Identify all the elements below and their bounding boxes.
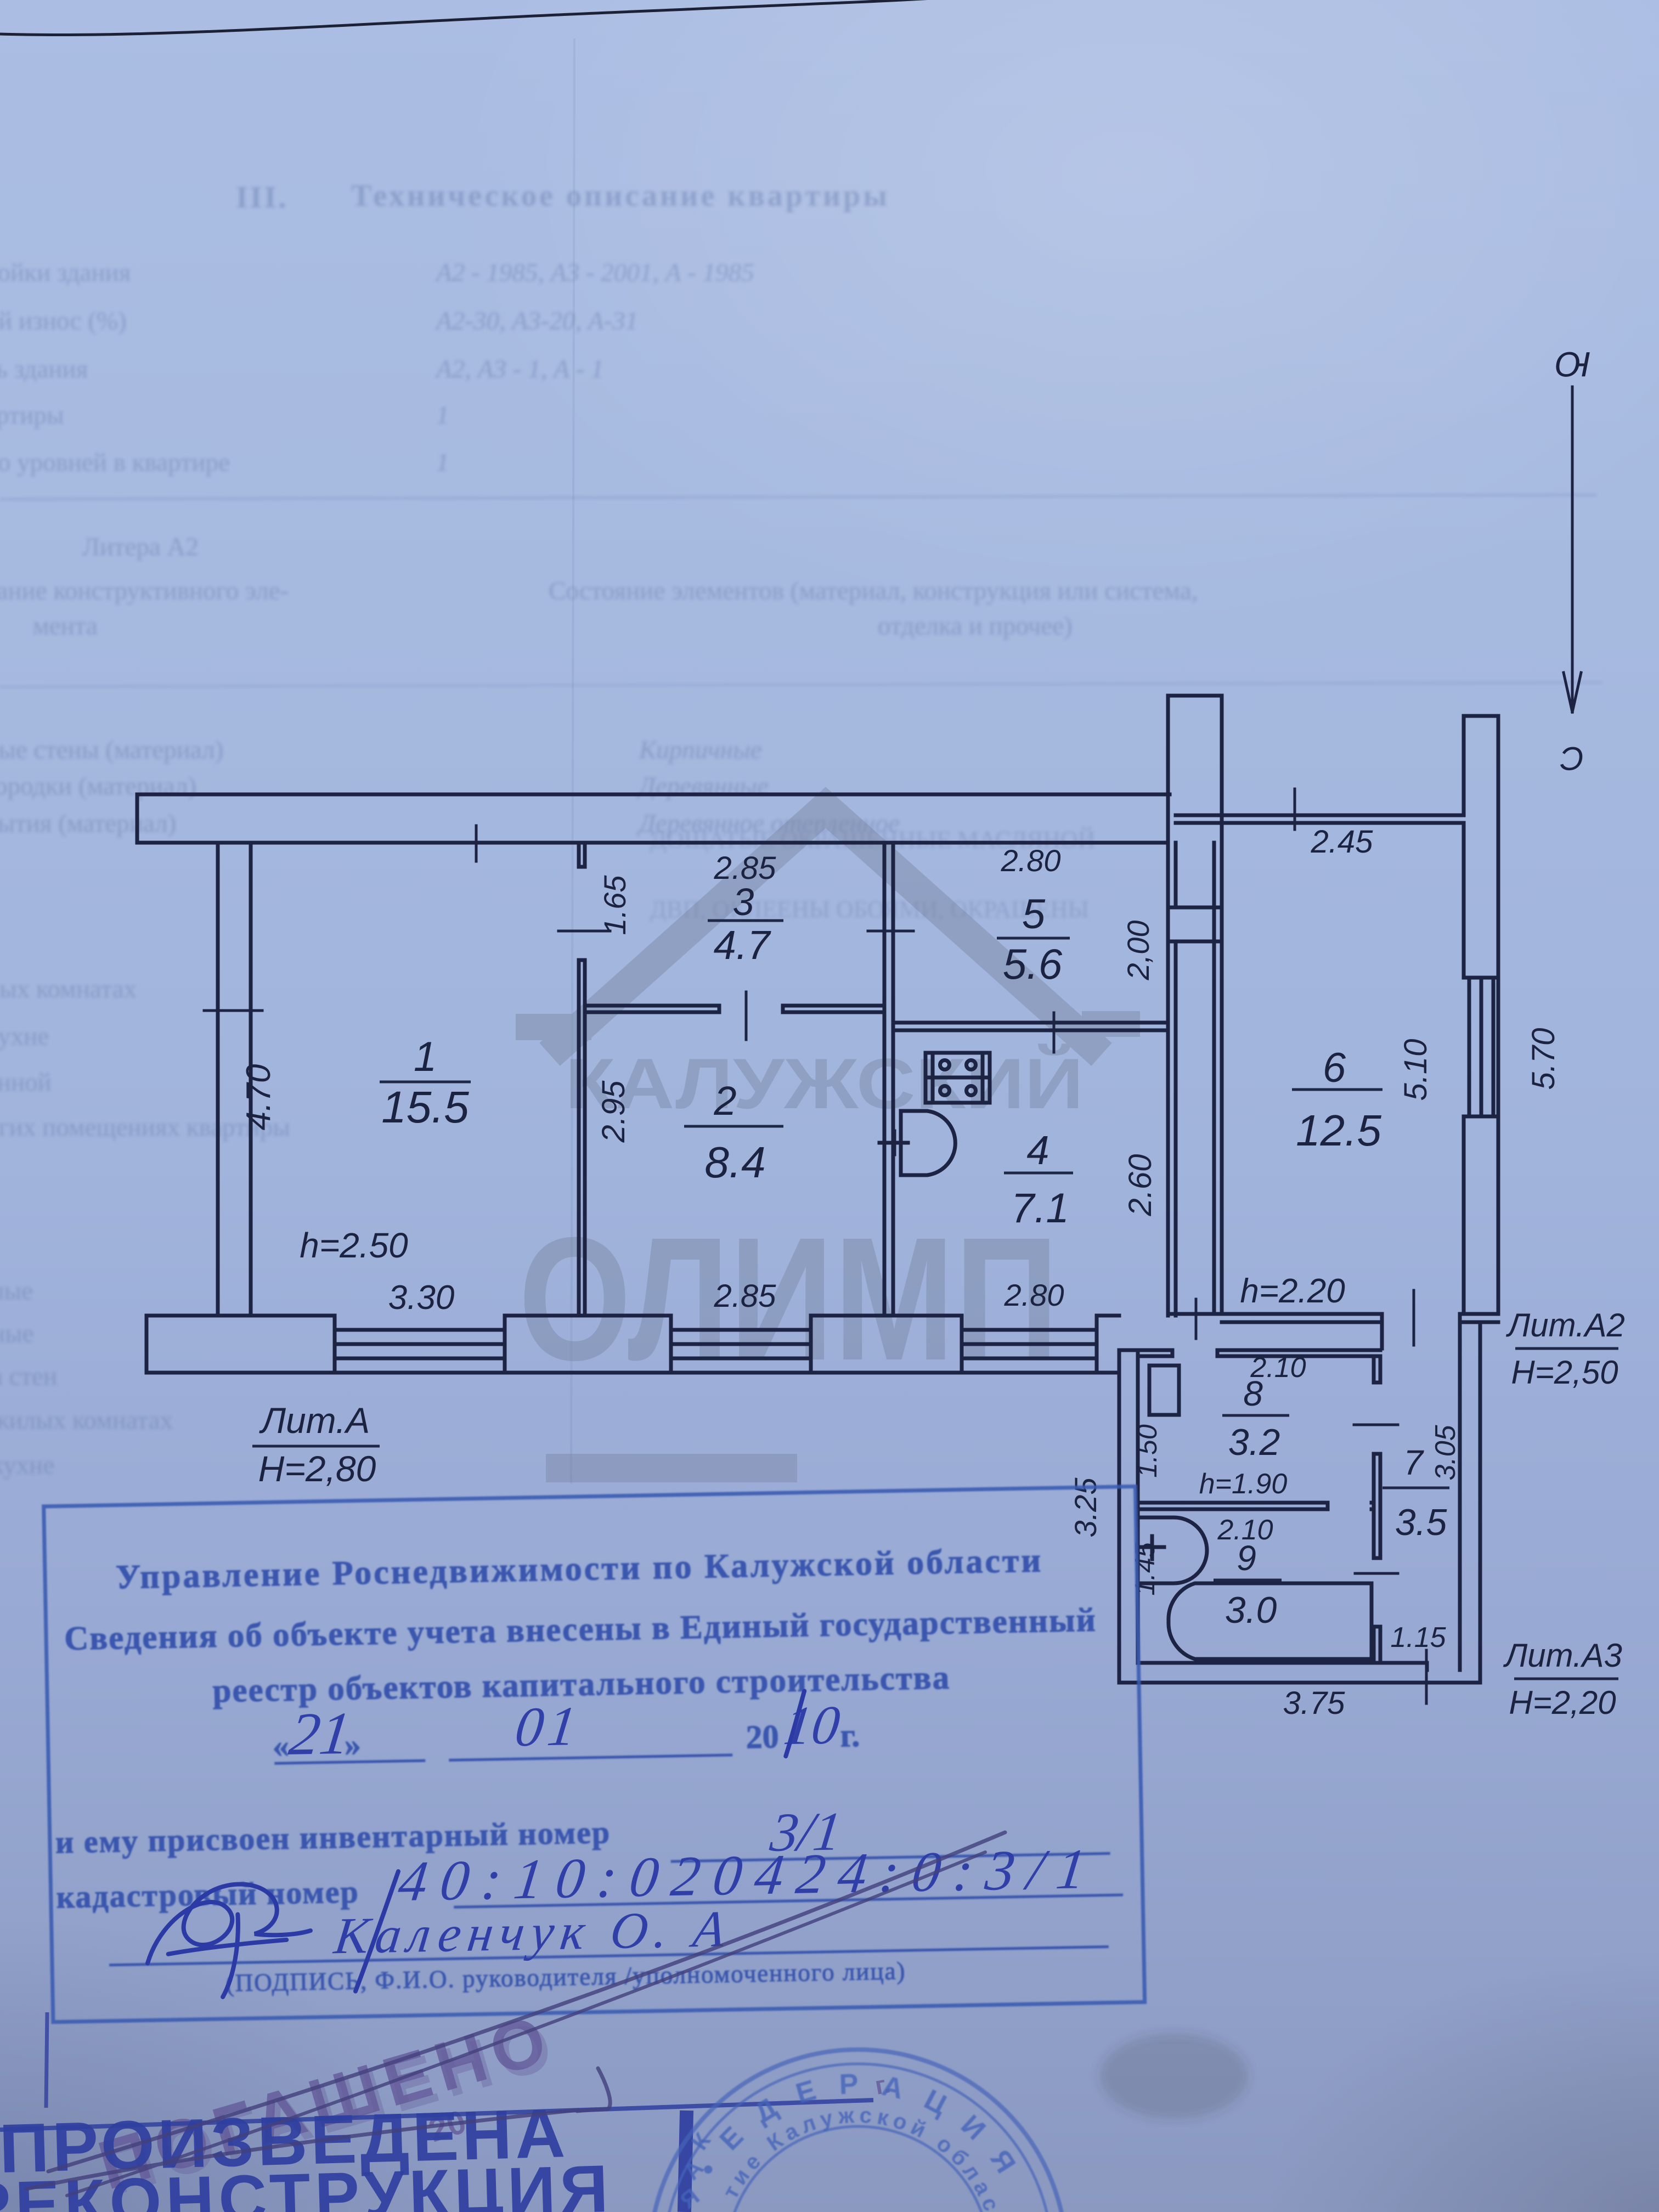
svg-text:01: 01	[512, 1695, 584, 1758]
svg-text:Каленчук О. А: Каленчук О. А	[330, 1900, 735, 1965]
svg-text:21: 21	[286, 1699, 354, 1768]
svg-text:г.: г.	[840, 1717, 860, 1754]
svg-text:Управление Роснедвижимости по: Управление Роснедвижимости по Калужской …	[115, 1542, 1043, 1596]
svg-text:40:10:020424:0:3/1: 40:10:020424:0:3/1	[395, 1837, 1102, 1913]
svg-text:(ПОДПИСЬ, Ф.И.О. руководителя: (ПОДПИСЬ, Ф.И.О. руководителя /уполномоч…	[225, 1957, 906, 1997]
svg-text:20: 20	[746, 1718, 779, 1755]
svg-text:Сведения об объекте учета внес: Сведения об объекте учета внесены в Един…	[64, 1602, 1097, 1657]
